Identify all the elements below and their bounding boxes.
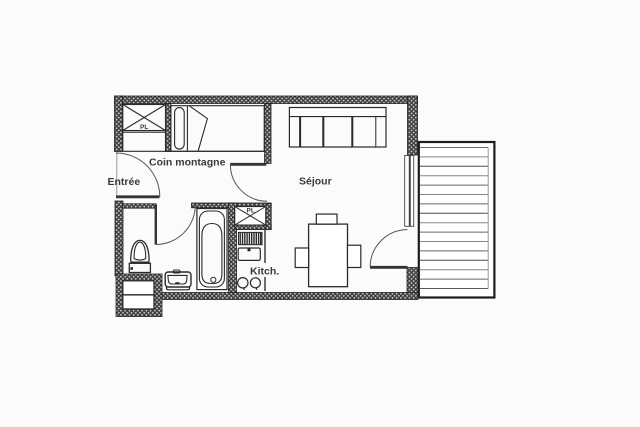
- svg-text:PL: PL: [140, 124, 148, 131]
- svg-text:PL: PL: [247, 208, 255, 215]
- svg-text:Séjour: Séjour: [299, 176, 332, 188]
- svg-text:Kitch.: Kitch.: [250, 265, 279, 277]
- svg-text:Entrée: Entrée: [108, 176, 141, 188]
- svg-text:Coin montagne: Coin montagne: [149, 157, 226, 169]
